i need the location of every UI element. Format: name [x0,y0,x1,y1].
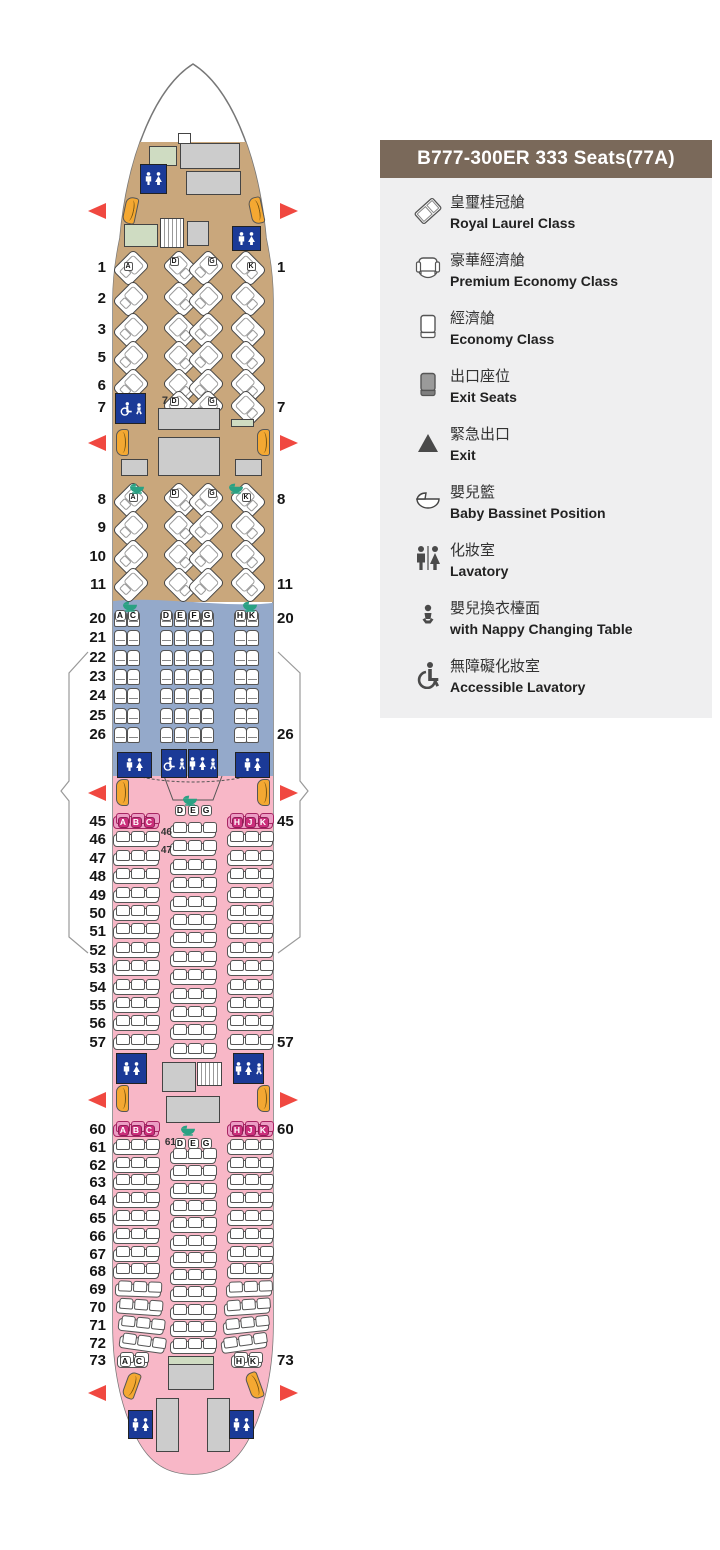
row-number-left: 60 [64,1121,106,1139]
economy-seat [260,1228,274,1239]
row-number-left: 20 [64,610,106,628]
economy-seat [146,1263,160,1274]
premium-economy-seat [174,650,187,666]
economy-seat [188,840,202,851]
economy-seat-group [170,1220,216,1233]
premium-economy-seat [160,688,173,704]
premium-economy-seat [127,727,140,743]
economy-seat [146,1015,160,1026]
economy-seat-group [113,908,159,921]
economy-seat [245,1157,259,1168]
economy-seat-group [227,1231,273,1244]
economy-seat [131,1034,145,1045]
lavatory [128,1410,153,1439]
seat-letter-chip: K [258,1125,269,1136]
economy-seat-group [227,1000,273,1013]
economy-seat [116,850,130,861]
row-number-left: 53 [64,960,106,978]
economy-seat [188,1252,202,1263]
row-number-left: 2 [64,290,106,308]
economy-seat [230,1015,244,1026]
legend-label-zh: 經濟艙 [450,307,554,328]
exit-triangle-icon [406,432,450,454]
accessible-lavatory [161,749,187,778]
economy-seat [117,1280,131,1291]
seat-letter-chip: C [134,1356,145,1367]
economy-seat [116,997,130,1008]
bassinet-icon [182,795,198,806]
economy-seat [146,923,160,934]
nappy-changing-icon [406,604,450,630]
economy-seat [245,1174,259,1185]
economy-seat [173,840,187,851]
economy-seat [131,979,145,990]
exit-door [116,429,129,456]
economy-seat-group [227,834,273,847]
economy-seat [116,1210,130,1221]
economy-seat [132,1281,146,1292]
exit-seat-icon [406,372,450,398]
economy-seat [116,1174,130,1185]
galley-block [166,1096,220,1123]
row-number-left: 45 [64,813,106,831]
economy-seat-group [113,1266,159,1279]
row-number-right: 60 [277,1121,294,1139]
legend-label-zh: 緊急出口 [450,423,510,444]
row-number-left: 46 [64,831,106,849]
premium-economy-seat [246,727,259,743]
economy-seat [230,979,244,990]
premium-economy-seat [188,669,201,685]
economy-seat [258,1280,272,1291]
galley-block [235,459,262,476]
economy-seat [116,923,130,934]
man-icon [132,1418,139,1432]
economy-seat [147,1282,161,1293]
economy-seat [203,1043,217,1054]
seat-letter-chip: F [189,610,200,621]
economy-seat [131,960,145,971]
economy-seat [173,1217,187,1228]
economy-seat [203,1338,217,1349]
seat-letter-chip: D [170,397,179,406]
seat-letter-chip: A [124,262,133,271]
economy-seat [131,887,145,898]
seat-letter-chip: H [234,1356,245,1367]
legend-label-en: Exit [450,447,510,463]
legend-item-premium-economy: 豪華經濟艙 Premium Economy Class [380,240,712,298]
economy-seat-group [113,1249,159,1262]
economy-seat [173,914,187,925]
exit-door [121,196,139,225]
economy-seat [173,988,187,999]
economy-seat-group [113,1000,159,1013]
economy-seat [203,1183,217,1194]
economy-seat [131,1192,145,1203]
economy-seat-group [227,1213,273,1226]
economy-seat [146,1034,160,1045]
legend-item-economy: 經濟艙 Economy Class [380,298,712,356]
legend-item-royal-laurel: 皇璽桂冠艙 Royal Laurel Class [380,182,712,240]
baby-icon [178,758,186,770]
economy-seat [245,1192,259,1203]
premium-economy-seat [201,650,214,666]
economy-seat [260,997,274,1008]
economy-seat [188,1235,202,1246]
seatmap-page: 123567ADGKDG7891011ADGK20ACDEFGHK2122232… [0,0,720,1550]
economy-seat [131,1174,145,1185]
premium-economy-seat [188,708,201,724]
economy-seat [116,1157,130,1168]
economy-seat [230,1174,244,1185]
galley-block [207,1398,230,1452]
economy-seat [116,831,130,842]
premium-economy-seat [234,669,247,685]
economy-seat [203,969,217,980]
exit-arrow-right [280,1385,298,1401]
exit-door [247,196,265,225]
economy-seat [116,979,130,990]
bassinet-marker [122,599,138,610]
galley-block [158,408,220,430]
economy-seat [188,822,202,833]
economy-seat-group [113,963,159,976]
economy-seat-group [170,1203,216,1216]
economy-seat-group [113,1231,159,1244]
economy-seat [230,868,244,879]
economy-seat [230,923,244,934]
accessible-lavatory-icon [406,661,450,689]
seat-letter-chip: D [170,489,179,498]
exit-arrow-right [280,435,298,451]
row-number-left: 21 [64,629,106,647]
row-number-left: 61 [64,1139,106,1157]
economy-seat-group [170,1046,216,1059]
economy-seat [260,979,274,990]
legend-label-en: Baby Bassinet Position [450,505,606,521]
economy-seat [230,905,244,916]
exit-door [257,1085,270,1112]
economy-seat [203,1200,217,1211]
crew-area-block [149,146,177,166]
exit-door [116,1085,129,1112]
seat-letter-chip: C [144,1125,155,1136]
economy-seat [243,1281,257,1292]
economy-seat [146,1192,160,1203]
bassinet-icon [180,1125,196,1136]
economy-seat [245,942,259,953]
economy-seat [230,1192,244,1203]
economy-seat [260,942,274,953]
economy-seat [230,1263,244,1274]
row-number-left: 48 [64,868,106,886]
row-number-left: 22 [64,649,106,667]
seat-letter-chip: H [232,817,243,828]
row-number-left: 1 [64,259,106,277]
economy-seat [223,1336,238,1349]
economy-seat [225,1317,240,1329]
seat-letter-chip: B [131,817,142,828]
legend-label-en: Exit Seats [450,389,517,405]
economy-seat [116,1263,130,1274]
economy-seat [146,905,160,916]
legend-label-zh: 嬰兒籃 [450,481,606,502]
seat-letter-chip: D [175,805,186,816]
seat-letter-chip: J [245,1125,256,1136]
economy-seat-group [170,1027,216,1040]
economy-seat [173,1148,187,1159]
exit-arrow-left [88,203,106,219]
economy-seat [203,1235,217,1246]
man-icon [238,232,245,246]
economy-seat [203,951,217,962]
economy-seat-group [170,1272,216,1285]
legend-item-nappy-changing: 嬰兒換衣檯面 with Nappy Changing Table [380,588,712,646]
premium-economy-seat [114,708,127,724]
premium-economy-seat-icon [406,256,450,282]
premium-economy-seat [234,688,247,704]
seat-letter-chip: H [232,1125,243,1136]
economy-seat-group [113,871,159,884]
economy-seat [134,1299,149,1311]
economy-seat [131,942,145,953]
economy-seat [245,923,259,934]
crew-area-block [124,224,158,247]
economy-seat [116,887,130,898]
man-icon [244,758,251,772]
economy-seat-group [170,1289,216,1302]
economy-seat [173,1269,187,1280]
economy-seat [188,1321,202,1332]
row-number-left: 10 [64,548,106,566]
seat-letter-chip: K [247,262,256,271]
premium-economy-seat [127,688,140,704]
economy-seat-group [227,1249,273,1262]
economy-seat [116,1228,130,1239]
economy-seat [173,1286,187,1297]
economy-seat [188,1043,202,1054]
seat-letter-chip: D [170,257,179,266]
economy-seat [188,1269,202,1280]
economy-seat-group [227,1177,273,1190]
premium-economy-seat [201,727,214,743]
economy-seat [226,1299,241,1311]
economy-seat [119,1298,134,1310]
economy-seat [245,1015,259,1026]
row-number-left: 68 [64,1263,106,1281]
economy-seat [245,1228,259,1239]
economy-seat [260,960,274,971]
row-number-left: 71 [64,1317,106,1335]
economy-seat [116,1015,130,1026]
economy-seat [188,1338,202,1349]
economy-seat [137,1334,152,1347]
seat-letter-chip: G [201,1138,212,1149]
economy-seat [188,1148,202,1159]
economy-seat [245,960,259,971]
economy-seat [203,1217,217,1228]
economy-seat [230,1228,244,1239]
economy-seat [173,1043,187,1054]
row-number-left: 23 [64,668,106,686]
galley-block [180,143,240,169]
economy-seat [188,859,202,870]
row-number-right: 73 [277,1352,294,1370]
row-number-left: 69 [64,1281,106,1299]
row-number-left: 57 [64,1034,106,1052]
economy-seat [228,1281,242,1292]
economy-seat-group [170,1238,216,1251]
man-icon [126,758,133,772]
premium-economy-seat [127,708,140,724]
legend-label-zh: 化妝室 [450,539,508,560]
premium-economy-seat [234,727,247,743]
economy-seat [245,887,259,898]
seat-letter-chip: J [245,817,256,828]
row-number-left: 72 [64,1335,106,1353]
row-number-left: 26 [64,726,106,744]
seat-letter-chip: G [202,610,213,621]
economy-seat [230,960,244,971]
exit-arrow-left [88,1092,106,1108]
economy-seat-group [170,1009,216,1022]
economy-seat-group [170,954,216,967]
economy-seat [260,923,274,934]
economy-seat [230,831,244,842]
galley-block [121,459,148,476]
legend-label-en: Accessible Lavatory [450,679,585,695]
woman-icon [247,232,256,246]
economy-seat [245,1139,259,1150]
economy-seat [203,932,217,943]
economy-seat-group [113,1177,159,1190]
premium-economy-seat [127,650,140,666]
economy-seat [152,1336,167,1349]
economy-seat [245,868,259,879]
premium-economy-seat [127,630,140,646]
economy-seat [203,1321,217,1332]
economy-seat [188,932,202,943]
royal-laurel-seat-icon [406,196,450,226]
woman-icon [132,1062,141,1076]
economy-seat-group [113,926,159,939]
bassinet-marker [228,481,244,492]
economy-seat-group [170,991,216,1004]
economy-seat [146,1157,160,1168]
bassinet-marker [180,1123,196,1134]
economy-seat-group [113,1213,159,1226]
row-number-left: 51 [64,923,106,941]
legend-label-zh: 無障礙化妝室 [450,655,585,676]
legend-label-en: Royal Laurel Class [450,215,575,231]
baby-icon [135,403,143,415]
row-number-left: 11 [64,576,106,594]
premium-economy-seat [160,708,173,724]
economy-seat [260,850,274,861]
baby-icon [255,1063,263,1075]
economy-seat [260,1263,274,1274]
crew-area-block [231,419,254,427]
economy-seat-group [170,1255,216,1268]
economy-seat [146,1174,160,1185]
seat-letter-chip: E [188,805,199,816]
economy-seat-group [170,1186,216,1199]
premium-economy-seat [160,650,173,666]
row-number-left: 66 [64,1228,106,1246]
lavatory [235,752,270,778]
row-number-right: 1 [277,259,285,277]
row-number-left: 47 [64,850,106,868]
economy-seat [188,1200,202,1211]
row-number-minor: 61 [134,1137,176,1149]
premium-economy-seat [201,630,214,646]
premium-economy-seat [234,708,247,724]
row-number-left: 67 [64,1246,106,1264]
row-number-right: 8 [277,491,285,509]
legend-label-zh: 出口座位 [450,365,517,386]
economy-seat [173,969,187,980]
economy-seat [203,859,217,870]
woman-icon [154,172,163,186]
economy-seat [188,1024,202,1035]
economy-seat-icon [406,314,450,340]
exit-door [116,779,129,806]
legend-item-accessible-lavatory: 無障礙化妝室 Accessible Lavatory [380,646,712,704]
lavatory [232,226,261,251]
premium-economy-seat [188,650,201,666]
economy-seat [173,822,187,833]
economy-seat [116,1139,130,1150]
row-number-right: 11 [277,576,293,594]
bassinet-marker [242,599,258,610]
economy-seat [173,1183,187,1194]
seat-letter-chip: C [144,817,155,828]
economy-seat [116,905,130,916]
lavatory [229,1410,254,1439]
row-number-left: 62 [64,1157,106,1175]
economy-seat [203,914,217,925]
economy-seat [203,1006,217,1017]
economy-seat-group [113,1018,159,1031]
premium-economy-seat [201,688,214,704]
row-number-left: 64 [64,1192,106,1210]
economy-seat [116,942,130,953]
economy-seat-group [170,972,216,985]
woman-icon [242,1418,251,1432]
seat-letter-chip: G [208,257,217,266]
legend-label-en: with Nappy Changing Table [450,621,633,637]
legend-item-exit-seats: 出口座位 Exit Seats [380,356,712,414]
man-icon [123,1062,130,1076]
economy-seat [146,1228,160,1239]
galley-block [158,437,220,476]
legend-body: 皇璽桂冠艙 Royal Laurel Class 豪華經濟艙 Premium E… [380,178,712,718]
bassinet-icon [122,601,138,612]
economy-seat [188,1165,202,1176]
economy-seat [260,1139,274,1150]
economy-seat [131,868,145,879]
premium-economy-seat [174,630,187,646]
lavatory [116,1053,147,1084]
row-number-right: 26 [277,726,294,744]
economy-seat [253,1331,268,1344]
economy-seat [120,1315,135,1327]
legend-title: B777-300ER 333 Seats(77A) [380,140,712,178]
premium-economy-seat [246,650,259,666]
economy-seat [173,877,187,888]
premium-economy-seat [174,708,187,724]
galley-block [187,221,209,246]
